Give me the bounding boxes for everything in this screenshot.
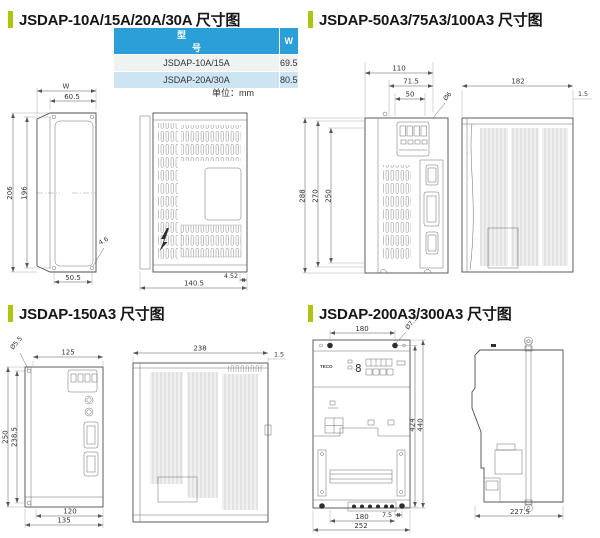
- dim-keypad-span: 50: [406, 91, 415, 99]
- dim-overall-width: 252: [354, 522, 367, 530]
- dim-hole-dia: Ø5.5: [8, 335, 24, 352]
- dim-hole-pitch: 250: [325, 189, 333, 202]
- s1-back-view: W 60.5 206 196 50.5 4.6: [6, 83, 110, 286]
- dim-hole-dia: 4.6: [98, 236, 110, 247]
- dim-overall-height: 206: [6, 186, 14, 200]
- dim-panel-lip: 1.5: [578, 91, 588, 98]
- title-accent-bar: [308, 11, 313, 28]
- dim-hole-pitch: 196: [21, 186, 29, 200]
- dim-terminal-offset: 7.5: [382, 512, 392, 519]
- title-accent-bar: [8, 11, 13, 28]
- dim-depth: 227.5: [510, 508, 530, 516]
- dim-width-label: W: [63, 83, 70, 91]
- title-accent-bar: [308, 305, 313, 322]
- dim-bottom-hole-span: 50.5: [65, 274, 81, 282]
- s3-side-view: 238 1.5: [133, 345, 286, 523]
- catalog-page: JSDAP-10A/15A/20A/30A 尺寸图 型 号 W JSDAP-10…: [0, 0, 600, 538]
- s1-side-view: 140.5 4.52: [140, 113, 247, 291]
- dim-top-hole-span: 60.5: [64, 93, 80, 101]
- seven-segment-display: 8: [355, 362, 362, 375]
- s3-dimension-drawing: Ø5.5 125 250 238.5 120 135: [0, 330, 300, 538]
- dim-bottom-hole-span: 180: [355, 513, 368, 521]
- brand-logo: TECO: [320, 364, 333, 369]
- cell-w: 69.5: [280, 55, 299, 72]
- dim-hole-span: 71.5: [403, 78, 419, 86]
- s2-side-view: 182 1.5: [462, 78, 592, 273]
- dim-hole-pitch: 238.5: [11, 427, 19, 447]
- section3-title-text: JSDAP-150A3 尺寸图: [19, 303, 164, 324]
- table-header-row: 型 号 W: [114, 28, 299, 55]
- s4-dimension-drawing: TECO 8: [300, 325, 600, 538]
- dim-bottom-width: 135: [57, 517, 70, 525]
- s2-dimension-drawing: 288 270 250 110 71.5 50 Ø6: [300, 55, 600, 298]
- dim-overall-height: 250: [2, 430, 10, 443]
- dim-top-width: 125: [61, 349, 74, 357]
- dim-depth: 238: [193, 345, 206, 353]
- dim-depth: 182: [511, 78, 524, 86]
- dim-hole-pitch: 424: [409, 418, 417, 432]
- dim-overall-height: 288: [299, 189, 307, 202]
- dim-overall-height: 440: [417, 418, 425, 431]
- s4-front-view: TECO 8: [313, 315, 426, 533]
- dim-hole-dia: Ø6: [441, 90, 453, 102]
- s3-front-view: Ø5.5 125 250 238.5 120 135: [2, 335, 104, 528]
- title-accent-bar: [8, 305, 13, 322]
- s2-front-view: 288 270 250 110 71.5 50 Ø6: [299, 62, 454, 273]
- section3-title: JSDAP-150A3 尺寸图: [8, 303, 164, 324]
- s4-side-view: 227.5: [472, 337, 563, 520]
- dim-panel-lip: 1.5: [274, 352, 284, 359]
- dim-depth: 140.5: [184, 280, 204, 288]
- dim-overall-width: 110: [392, 65, 405, 73]
- cell-model: JSDAP-10A/15A: [114, 55, 280, 72]
- section2-title-text: JSDAP-50A3/75A3/100A3 尺寸图: [319, 9, 542, 30]
- s1-dimension-drawing: W 60.5 206 196 50.5 4.6: [0, 78, 300, 298]
- dim-body-height: 270: [312, 189, 320, 202]
- dim-top-hole-span: 180: [355, 325, 368, 333]
- table-row: JSDAP-10A/15A 69.5: [114, 55, 299, 72]
- col-header-model: 型 号: [114, 28, 280, 55]
- dim-foot-offset: 4.52: [224, 273, 238, 280]
- dim-bottom-inner-width: 120: [63, 508, 76, 516]
- section2-title: JSDAP-50A3/75A3/100A3 尺寸图: [308, 9, 542, 30]
